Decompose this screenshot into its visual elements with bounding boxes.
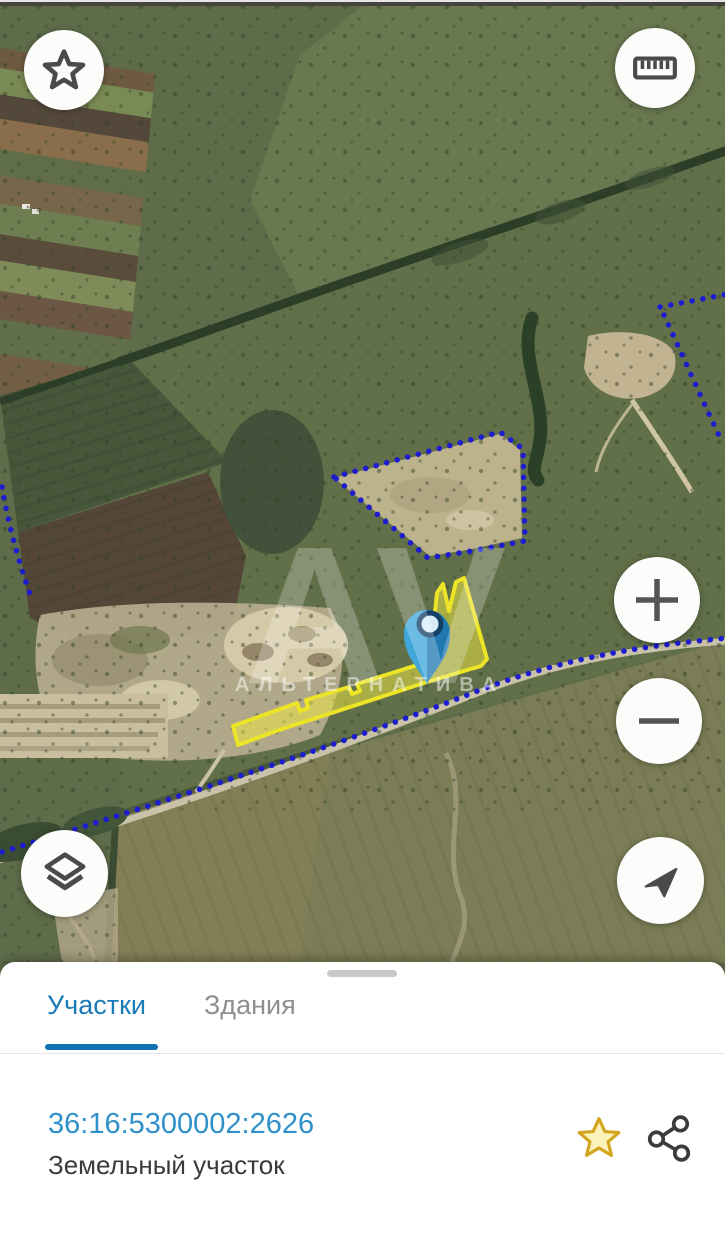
ruler-icon bbox=[632, 45, 678, 91]
share-icon[interactable] bbox=[645, 1114, 693, 1162]
active-tab-underline bbox=[45, 1044, 158, 1050]
tabs-divider bbox=[0, 1053, 725, 1054]
layers-button[interactable] bbox=[21, 830, 108, 917]
minus-icon bbox=[634, 696, 684, 746]
tab-parcels[interactable]: Участки bbox=[47, 990, 146, 1021]
app-screen: АV АЛЬТЕРНАТИВА bbox=[0, 0, 725, 1236]
plus-icon bbox=[632, 575, 682, 625]
zoom-in-button[interactable] bbox=[614, 557, 700, 643]
satellite-map[interactable]: АV АЛЬТЕРНАТИВА bbox=[0, 0, 725, 963]
navigation-arrow-icon bbox=[637, 857, 685, 905]
sheet-drag-handle[interactable] bbox=[327, 970, 397, 977]
favorite-star-icon[interactable] bbox=[575, 1114, 623, 1162]
measure-button[interactable] bbox=[615, 28, 695, 108]
sheet-tabs: Участки Здания bbox=[47, 990, 296, 1021]
my-location-button[interactable] bbox=[617, 837, 704, 924]
layers-icon bbox=[40, 849, 90, 899]
tab-buildings[interactable]: Здания bbox=[204, 990, 296, 1021]
star-icon bbox=[41, 47, 87, 93]
top-hairline bbox=[0, 0, 725, 6]
zoom-out-button[interactable] bbox=[616, 678, 702, 764]
favorite-map-button[interactable] bbox=[24, 30, 104, 110]
bottom-sheet: Участки Здания 36:16:5300002:2626 Земель… bbox=[0, 962, 725, 1236]
satellite-imagery bbox=[0, 0, 725, 963]
